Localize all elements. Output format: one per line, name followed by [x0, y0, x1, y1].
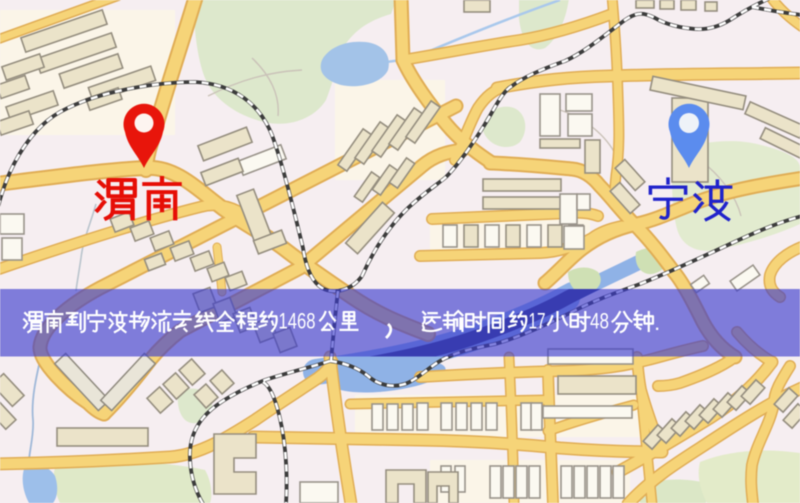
svg-text:1468: 1468 [279, 309, 316, 334]
svg-text:.: . [654, 310, 660, 335]
svg-text:17: 17 [529, 309, 546, 334]
svg-text:48: 48 [590, 309, 609, 334]
